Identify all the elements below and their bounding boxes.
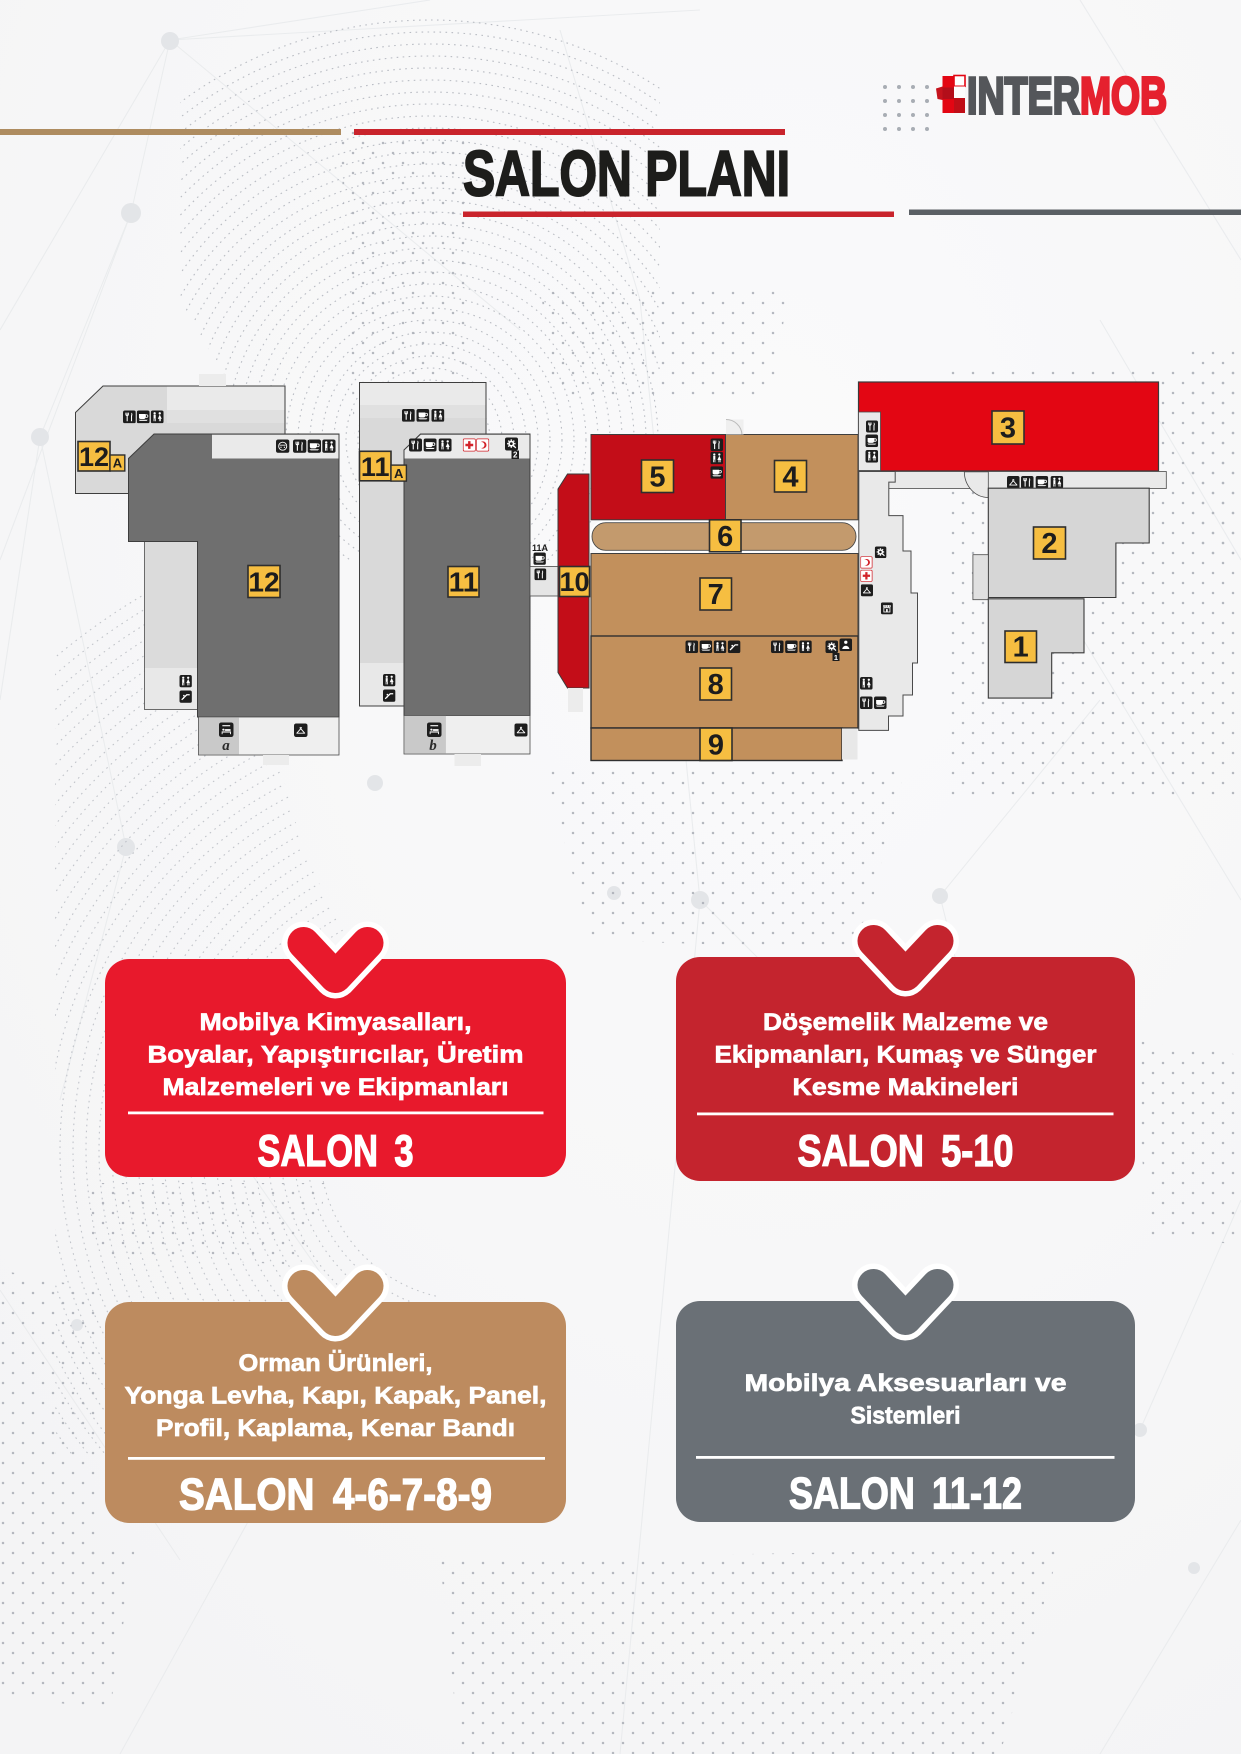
svg-text:SALON PLANI: SALON PLANI <box>463 138 790 210</box>
svg-text:12: 12 <box>248 567 279 598</box>
svg-text:a: a <box>222 738 230 754</box>
svg-text:11: 11 <box>449 567 479 598</box>
svg-text:1: 1 <box>834 653 838 662</box>
svg-text:Yonga Levha, Kapı, Kapak, Pane: Yonga Levha, Kapı, Kapak, Panel, <box>125 1383 547 1410</box>
svg-text:Profil, Kaplama, Kenar Bandı: Profil, Kaplama, Kenar Bandı <box>156 1415 515 1442</box>
svg-text:b: b <box>429 738 437 754</box>
svg-text:Malzemeleri ve Ekipmanları: Malzemeleri ve Ekipmanları <box>163 1074 509 1101</box>
svg-text:Ekipmanları, Kumaş ve Sünger: Ekipmanları, Kumaş ve Sünger <box>715 1042 1097 1069</box>
svg-text:9: 9 <box>708 730 724 762</box>
svg-text:Döşemelik Malzeme ve: Döşemelik Malzeme ve <box>763 1009 1048 1036</box>
svg-text:11: 11 <box>361 452 390 482</box>
svg-text:Boyalar, Yapıştırıcılar, Üreti: Boyalar, Yapıştırıcılar, Üretim <box>148 1042 524 1069</box>
svg-text:Orman Ürünleri,: Orman Ürünleri, <box>239 1350 433 1377</box>
svg-text:SALON 11-12: SALON 11-12 <box>789 1470 1022 1519</box>
svg-text:6: 6 <box>717 521 733 553</box>
svg-text:4: 4 <box>782 462 798 494</box>
svg-text:INTER: INTER <box>967 68 1080 126</box>
svg-text:7: 7 <box>708 579 724 611</box>
svg-text:SALON 4-6-7-8-9: SALON 4-6-7-8-9 <box>179 1471 492 1520</box>
svg-text:2: 2 <box>1041 528 1057 560</box>
svg-text:A: A <box>113 456 123 471</box>
svg-text:A: A <box>394 466 404 481</box>
svg-text:8: 8 <box>708 669 724 701</box>
svg-text:MOB: MOB <box>1080 68 1167 126</box>
svg-text:3: 3 <box>1000 413 1016 445</box>
svg-text:10: 10 <box>559 567 589 597</box>
svg-text:5: 5 <box>649 462 665 494</box>
svg-text:SALON 5-10: SALON 5-10 <box>798 1127 1014 1176</box>
svg-text:Sistemleri: Sistemleri <box>851 1403 961 1430</box>
svg-text:12: 12 <box>79 442 109 472</box>
svg-text:2: 2 <box>513 451 518 460</box>
svg-text:Mobilya Kimyasalları,: Mobilya Kimyasalları, <box>200 1009 472 1036</box>
svg-text:1: 1 <box>1013 632 1029 664</box>
svg-text:Kesme Makineleri: Kesme Makineleri <box>793 1074 1019 1101</box>
svg-text:11A: 11A <box>532 543 549 553</box>
svg-text:SALON 3: SALON 3 <box>258 1127 414 1176</box>
svg-text:Mobilya Aksesuarları ve: Mobilya Aksesuarları ve <box>745 1370 1067 1397</box>
